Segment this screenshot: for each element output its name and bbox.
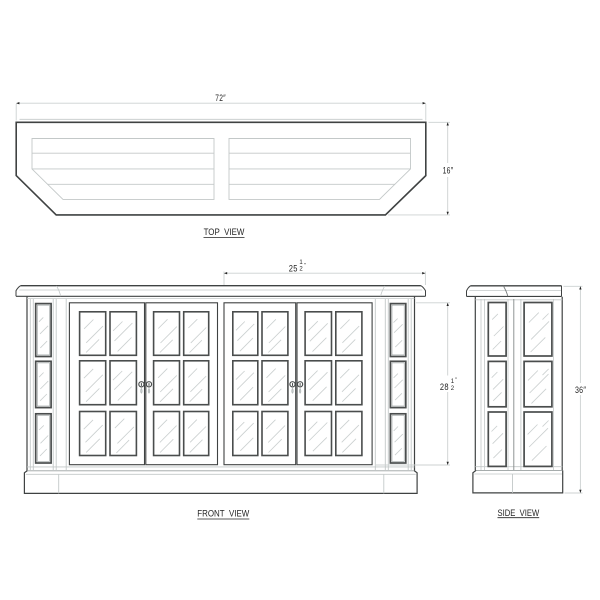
svg-text:36″: 36″: [575, 385, 587, 395]
svg-text:FRONT VIEW: FRONT VIEW: [197, 509, 249, 520]
svg-text:28: 28: [440, 382, 449, 392]
svg-text:SIDE VIEW: SIDE VIEW: [498, 508, 540, 519]
svg-text:25: 25: [289, 263, 298, 273]
svg-text:′′: ′′: [304, 263, 306, 269]
svg-text:TOP VIEW: TOP VIEW: [204, 227, 245, 238]
svg-text:′′: ′′: [455, 378, 457, 384]
svg-text:16″: 16″: [443, 165, 454, 175]
svg-text:72″: 72″: [215, 93, 226, 103]
